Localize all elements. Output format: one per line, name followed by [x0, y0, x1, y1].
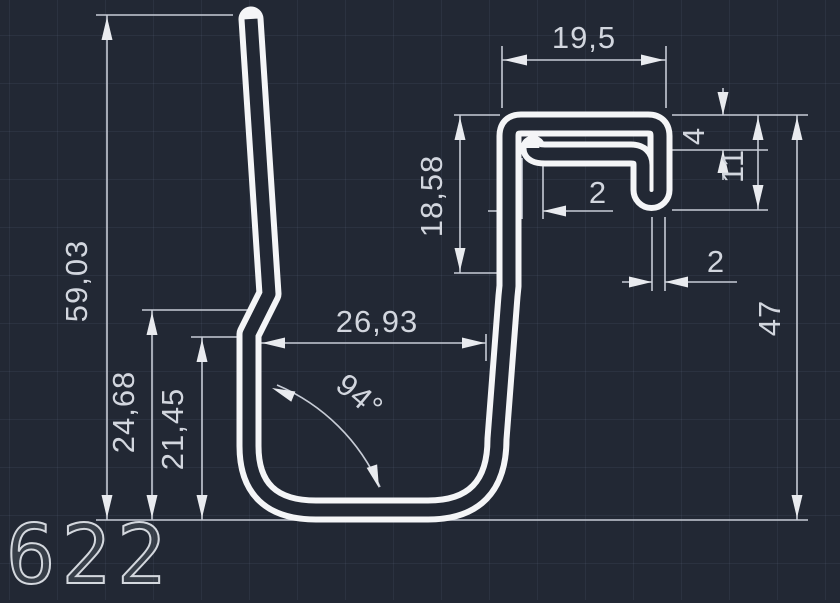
dim-jog-lower-height: 21,45 [155, 337, 246, 520]
profile-outline [249, 19, 660, 510]
dim-tab-thickness-label: 2 [589, 175, 607, 210]
dim-top-width-label: 19,5 [552, 20, 616, 55]
dim-jog-lower-height-label: 21,45 [155, 388, 190, 471]
dim-base-width-label: 26,93 [336, 304, 419, 339]
dim-hook-side-height-label: 18,58 [414, 155, 449, 238]
dim-base-width: 26,93 [258, 304, 486, 368]
cad-viewport[interactable]: 19,5 18,58 4 11 [0, 0, 840, 600]
dim-jog-upper-height-label: 24,68 [106, 371, 141, 454]
dim-hook-side-height: 18,58 [414, 115, 502, 273]
dim-wall-thickness-label: 2 [707, 244, 725, 279]
dim-left-height: 59,03 [59, 15, 233, 520]
dim-hook-depth-label: 11 [715, 149, 750, 183]
dim-bottom-angle: 94° [270, 367, 390, 490]
dim-wall-thickness: 2 [622, 217, 737, 291]
profile-number-label: 622 [6, 514, 206, 598]
dim-hook-opening: 4 [656, 88, 768, 180]
dim-left-height-label: 59,03 [59, 240, 94, 323]
dim-right-height-label: 47 [752, 300, 787, 336]
dim-top-width: 19,5 [502, 20, 666, 108]
dim-bottom-angle-label: 94° [329, 367, 390, 426]
dim-hook-opening-label: 4 [676, 127, 711, 145]
